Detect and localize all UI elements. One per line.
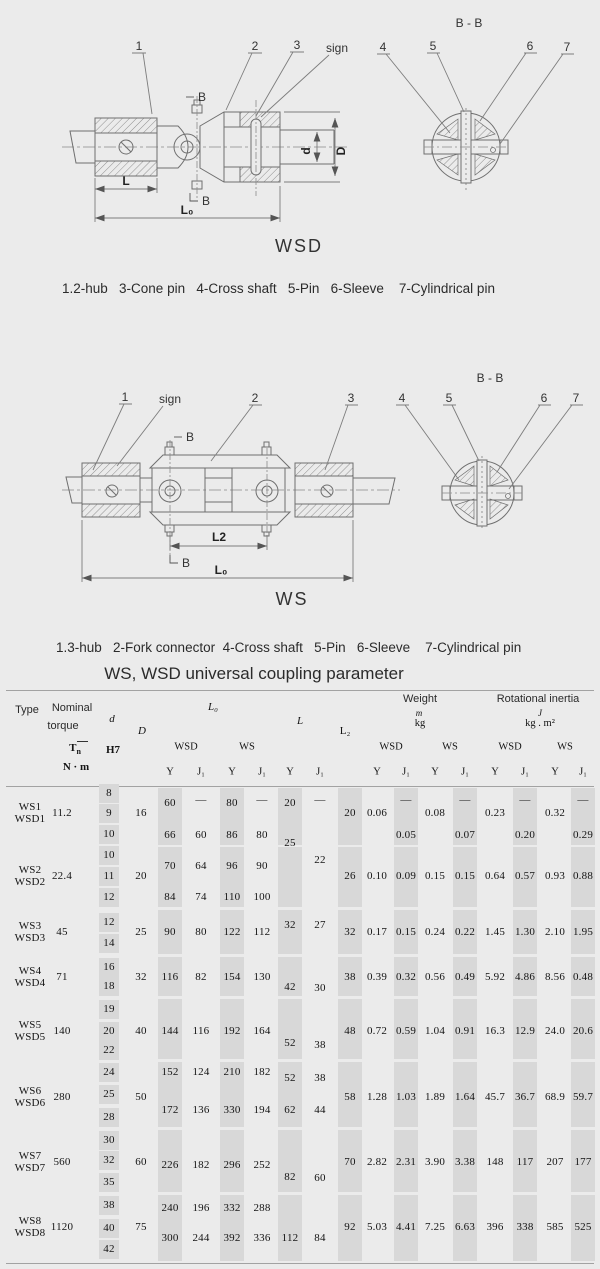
col-header-j: J [538, 708, 542, 718]
table-cell: 22 [103, 1044, 114, 1056]
table-cell: 5.03 [367, 1221, 387, 1233]
table-cell: — [577, 794, 588, 806]
table-cell: 19 [103, 1003, 114, 1015]
table-cell: 0.05 [396, 829, 416, 841]
table-cell: 207 [546, 1156, 563, 1168]
table-cell: 66 [164, 829, 175, 841]
table-cell: 20 [284, 797, 295, 809]
table-cell: 1.30 [515, 926, 535, 938]
ws-bb-section [442, 456, 522, 530]
table-cell: WSD7 [15, 1162, 46, 1174]
table-cell: WSD6 [15, 1097, 46, 1109]
table-cell: 2.82 [367, 1156, 387, 1168]
table-cell: 42 [284, 981, 295, 993]
table-cell: 68.9 [545, 1091, 565, 1103]
table-cell: 27 [314, 919, 325, 931]
col-header-type: Type [15, 704, 39, 716]
table-cell: 130 [253, 971, 270, 983]
ws-section-b-bottom-label: B [182, 556, 190, 570]
group-header-wsd: WSD [174, 742, 197, 753]
table-cell: 58 [344, 1091, 355, 1103]
table-cell: 96 [226, 860, 237, 872]
wsd-sign-label: sign [326, 41, 348, 55]
ws-callout-6: 6 [541, 391, 548, 405]
table-cell: 116 [162, 971, 179, 983]
table-cell: 16 [103, 961, 114, 973]
table-cell: 59.7 [573, 1091, 593, 1103]
table-cell: 80 [195, 926, 206, 938]
table-cell: 1.89 [425, 1091, 445, 1103]
catalog-page: d D L L₀ B B 1 2 3 sign [0, 0, 600, 1269]
table-cell: 52 [284, 1037, 295, 1049]
ws-callout-leaders [93, 404, 358, 470]
table-cell: 52 [284, 1072, 295, 1084]
table-cell: 30 [314, 982, 325, 994]
column-stripe [278, 847, 302, 907]
wsd-assembly-drawing [62, 96, 348, 198]
table-cell: WSD1 [15, 813, 46, 825]
col-header-D: D [138, 725, 146, 737]
table-cell: 0.15 [425, 870, 445, 882]
table-cell: 2.10 [545, 926, 565, 938]
table-cell: WSD2 [15, 876, 46, 888]
table-cell: 296 [223, 1159, 240, 1171]
wsd-callout-1: 1 [136, 39, 143, 53]
table-cell: 70 [344, 1156, 355, 1168]
table-cell: 71 [56, 971, 67, 983]
table-cell: 1.28 [367, 1091, 387, 1103]
table-cell: 32 [103, 1154, 114, 1166]
table-cell: 0.93 [545, 870, 565, 882]
table-cell: 16 [135, 807, 146, 819]
ws-callout-1: 1 [122, 390, 129, 404]
col-header-nominal: Nominal [52, 702, 92, 714]
col-header-l0: L₀ [208, 701, 218, 713]
table-cell: 585 [546, 1221, 563, 1233]
table-cell: 14 [103, 937, 114, 949]
table-cell: 0.23 [485, 807, 505, 819]
table-cell: 0.72 [367, 1025, 387, 1037]
table-cell: 25 [284, 837, 295, 849]
table-cell: 38 [344, 971, 355, 983]
ws-callout-3: 3 [348, 391, 355, 405]
table-cell: 0.32 [396, 971, 416, 983]
col-header-kgm2: kg . m² [525, 718, 555, 729]
table-cell: 24.0 [545, 1025, 565, 1037]
subcol-header-j1: J₁ [316, 767, 324, 778]
table-cell: 35 [103, 1176, 114, 1188]
table-cell: 30 [103, 1134, 114, 1146]
table-cell: 244 [192, 1232, 209, 1244]
table-title: WS, WSD universal coupling parameter [104, 664, 404, 684]
table-cell: 8.56 [545, 971, 565, 983]
table-cell: 64 [195, 860, 206, 872]
table-cell: 38 [314, 1072, 325, 1084]
table-cell: 0.15 [455, 870, 475, 882]
table-cell: 84 [314, 1232, 325, 1244]
table-cell: 20 [103, 1025, 114, 1037]
wsd-parts-legend: 1.2-hub 3-Cone pin 4-Cross shaft 5-Pin 6… [62, 281, 495, 296]
table-cell: 1120 [51, 1221, 73, 1233]
table-cell: 240 [161, 1202, 178, 1214]
wsd-callout-6: 6 [527, 39, 534, 53]
table-cell: 25 [135, 926, 146, 938]
table-cell: 144 [161, 1025, 178, 1037]
table-cell: 6.63 [455, 1221, 475, 1233]
wsd-callout-5: 5 [430, 39, 437, 53]
table-cell: 86 [226, 829, 237, 841]
ws-fork-connector-bottom [150, 512, 290, 525]
table-cell: 40 [103, 1222, 114, 1234]
group-header-wsd: WSD [379, 742, 402, 753]
subcol-header-y: Y [228, 767, 236, 778]
ws-section-b-top-label: B [186, 430, 194, 444]
table-cell: WSD5 [15, 1031, 46, 1043]
table-cell: 122 [223, 926, 240, 938]
table-cell: 0.48 [573, 971, 593, 983]
table-cell: 16.3 [485, 1025, 505, 1037]
table-cell: 45 [56, 926, 67, 938]
table-cell: 32 [344, 926, 355, 938]
table-cell: WSD3 [15, 932, 46, 944]
table-cell: 74 [195, 891, 206, 903]
subcol-header-y: Y [166, 767, 174, 778]
table-cell: 12 [103, 916, 114, 928]
table-cell: 117 [517, 1156, 534, 1168]
wsd-bb-section [424, 108, 508, 190]
table-cell: 18 [103, 980, 114, 992]
ws-assembly-drawing [62, 440, 400, 560]
table-cell: 0.56 [425, 971, 445, 983]
table-cell: 10 [103, 828, 114, 840]
table-cell: WS3 [19, 920, 42, 932]
table-cell: 0.32 [545, 807, 565, 819]
table-cell: 226 [161, 1159, 178, 1171]
table-cell: 8 [106, 787, 112, 799]
wsd-callout-7: 7 [564, 40, 571, 54]
table-cell: WS4 [19, 965, 42, 977]
col-header-weight: Weight [403, 693, 437, 705]
table-cell: 252 [253, 1159, 270, 1171]
table-cell: 0.09 [396, 870, 416, 882]
table-top-rule [6, 690, 594, 691]
ws-sign-label: sign [159, 392, 181, 406]
table-cell: 45.7 [485, 1091, 505, 1103]
table-cell: 0.22 [455, 926, 475, 938]
subcol-header-y: Y [431, 767, 439, 778]
wsd-section-b-top-label: B [198, 90, 206, 104]
table-cell: 24 [103, 1066, 114, 1078]
table-cell: 32 [135, 971, 146, 983]
table-cell: 0.88 [573, 870, 593, 882]
subcol-header-y: Y [286, 767, 294, 778]
ws-callout-5: 5 [446, 391, 453, 405]
table-cell: 112 [254, 926, 271, 938]
table-cell: 90 [256, 860, 267, 872]
table-cell: 84 [164, 891, 175, 903]
table-cell: 0.91 [455, 1025, 475, 1037]
table-cell: 48 [344, 1025, 355, 1037]
subcol-header-j1: J₁ [579, 767, 587, 778]
table-cell: 26 [344, 870, 355, 882]
group-header-ws: WS [239, 742, 255, 753]
table-cell: 0.39 [367, 971, 387, 983]
table-cell: 192 [223, 1025, 240, 1037]
ws-bb-title: B - B [477, 371, 504, 385]
table-cell: 42 [103, 1243, 114, 1255]
table-cell: 20 [344, 807, 355, 819]
table-cell: 92 [344, 1221, 355, 1233]
table-cell: WS7 [19, 1150, 42, 1162]
table-cell: 525 [574, 1221, 591, 1233]
col-header-m: m [416, 708, 423, 718]
table-cell: 2.31 [396, 1156, 416, 1168]
table-cell: 20.6 [573, 1025, 593, 1037]
coupling-drawings: d D L L₀ B B 1 2 3 sign [0, 0, 600, 640]
col-header-tn: Tn [69, 742, 81, 756]
table-cell: 0.24 [425, 926, 445, 938]
table-cell: 0.59 [396, 1025, 416, 1037]
table-cell: 1.64 [455, 1091, 475, 1103]
table-cell: — [256, 794, 267, 806]
table-cell: 396 [486, 1221, 503, 1233]
table-cell: 60 [314, 1172, 325, 1184]
column-stripe [278, 1195, 302, 1261]
table-cell: 1.45 [485, 926, 505, 938]
table-cell: — [314, 794, 325, 806]
table-cell: 10 [103, 849, 114, 861]
col-header-nm: N · m [63, 761, 89, 773]
table-cell: 9 [106, 807, 112, 819]
table-cell: 172 [161, 1104, 178, 1116]
table-cell: 0.08 [425, 807, 445, 819]
table-cell: 1.95 [573, 926, 593, 938]
table-cell: 11.2 [52, 807, 72, 819]
table-cell: 332 [223, 1202, 240, 1214]
group-header-ws: WS [557, 742, 573, 753]
subcol-header-y: Y [373, 767, 381, 778]
table-cell: 11 [104, 870, 115, 882]
table-cell: 100 [253, 891, 270, 903]
table-cell: 4.86 [515, 971, 535, 983]
table-cell: 177 [574, 1156, 591, 1168]
table-cell: 22.4 [52, 870, 72, 882]
table-cell: 196 [192, 1202, 209, 1214]
table-cell: 110 [224, 891, 241, 903]
table-cell: 0.20 [515, 829, 535, 841]
table-cell: 0.07 [455, 829, 475, 841]
table-cell: 112 [282, 1232, 299, 1244]
ws-callout-4: 4 [399, 391, 406, 405]
col-header-l: L [297, 715, 303, 727]
wsd-callout-leaders [132, 52, 329, 117]
ws-dim-L2-label: L2 [212, 530, 226, 544]
wsd-dim-D-label: D [334, 146, 348, 155]
table-cell: WS1 [19, 801, 42, 813]
ws-parts-legend: 1.3-hub 2-Fork connector 4-Cross shaft 5… [56, 640, 521, 655]
table-cell: 28 [103, 1111, 114, 1123]
table-cell: 0.64 [485, 870, 505, 882]
wsd-callout-2: 2 [252, 39, 259, 53]
group-header-ws: WS [442, 742, 458, 753]
table-cell: 60 [195, 829, 206, 841]
subcol-header-j1: J₁ [461, 767, 469, 778]
table-cell: 44 [314, 1104, 325, 1116]
table-cell: 0.49 [455, 971, 475, 983]
table-cell: 210 [223, 1066, 240, 1078]
ws-right-shaft [353, 478, 395, 504]
table-bottom-rule [6, 1263, 594, 1264]
subcol-header-j1: J₁ [521, 767, 529, 778]
ws-fork-connector-top [150, 455, 290, 468]
table-cell: 20 [135, 870, 146, 882]
subcol-header-j1: J₁ [258, 767, 266, 778]
table-cell: WSD4 [15, 977, 46, 989]
table-cell: 136 [192, 1104, 209, 1116]
table-header-rule [6, 786, 594, 787]
table-cell: 0.57 [515, 870, 535, 882]
table-cell: 70 [164, 860, 175, 872]
table-cell: 90 [164, 926, 175, 938]
table-cell: 288 [253, 1202, 270, 1214]
table-cell: 152 [161, 1066, 178, 1078]
ws-bb-leaders [396, 405, 583, 489]
table-cell: 75 [135, 1221, 146, 1233]
table-cell: 560 [53, 1156, 70, 1168]
column-stripe [278, 910, 302, 954]
wsd-bb-title: B - B [456, 16, 483, 30]
table-cell: 60 [164, 797, 175, 809]
wsd-callout-3: 3 [294, 38, 301, 52]
table-cell: 0.06 [367, 807, 387, 819]
group-header-wsd: WSD [498, 742, 521, 753]
col-header-kg: kg [415, 718, 426, 729]
table-cell: 50 [135, 1091, 146, 1103]
ws-caption: WS [276, 589, 309, 610]
table-cell: WSD8 [15, 1227, 46, 1239]
table-cell: 140 [53, 1025, 70, 1037]
table-cell: 194 [253, 1104, 270, 1116]
wsd-dim-L0-label: L₀ [181, 203, 194, 217]
table-cell: 124 [192, 1066, 209, 1078]
table-cell: — [195, 794, 206, 806]
table-cell: 182 [253, 1066, 270, 1078]
table-cell: 12 [103, 891, 114, 903]
column-stripe [278, 999, 302, 1059]
table-cell: WS5 [19, 1019, 42, 1031]
table-cell: 36.7 [515, 1091, 535, 1103]
table-cell: 164 [253, 1025, 270, 1037]
table-cell: 7.25 [425, 1221, 445, 1233]
table-cell: — [459, 794, 470, 806]
table-cell: 116 [193, 1025, 210, 1037]
table-cell: 62 [284, 1104, 295, 1116]
table-cell: 38 [103, 1199, 114, 1211]
table-cell: 182 [192, 1159, 209, 1171]
table-cell: 330 [223, 1104, 240, 1116]
table-cell: 3.38 [455, 1156, 475, 1168]
col-header-l2: L₂ [340, 725, 351, 737]
table-cell: WS6 [19, 1085, 42, 1097]
col-header-d: d [109, 713, 115, 725]
col-header-torque: torque [47, 720, 78, 732]
wsd-section-b-bottom-label: B [202, 194, 210, 208]
subcol-header-y: Y [491, 767, 499, 778]
table-cell: 80 [256, 829, 267, 841]
table-cell: 12.9 [515, 1025, 535, 1037]
ws-callout-2: 2 [252, 391, 259, 405]
table-cell: 32 [284, 919, 295, 931]
table-cell: 300 [161, 1232, 178, 1244]
table-cell: 25 [103, 1088, 114, 1100]
wsd-callout-4: 4 [380, 40, 387, 54]
subcol-header-y: Y [551, 767, 559, 778]
table-cell: 148 [486, 1156, 503, 1168]
table-cell: 280 [53, 1091, 70, 1103]
table-cell: 82 [195, 971, 206, 983]
table-cell: 60 [135, 1156, 146, 1168]
table-cell: — [519, 794, 530, 806]
table-cell: WS8 [19, 1215, 42, 1227]
subcol-header-j1: J₁ [402, 767, 410, 778]
table-cell: 40 [135, 1025, 146, 1037]
table-cell: 5.92 [485, 971, 505, 983]
table-cell: 80 [226, 797, 237, 809]
table-cell: 38 [314, 1039, 325, 1051]
table-cell: 82 [284, 1171, 295, 1183]
table-cell: WS2 [19, 864, 42, 876]
table-cell: 1.03 [396, 1091, 416, 1103]
wsd-dim-d-label: d [299, 147, 313, 154]
table-cell: 392 [223, 1232, 240, 1244]
table-cell: 0.10 [367, 870, 387, 882]
col-header-h7: H7 [106, 744, 120, 756]
table-cell: 4.41 [396, 1221, 416, 1233]
table-cell: 336 [253, 1232, 270, 1244]
table-cell: 0.15 [396, 926, 416, 938]
wsd-caption: WSD [275, 236, 323, 257]
table-cell: — [400, 794, 411, 806]
table-cell: 154 [223, 971, 240, 983]
table-cell: 22 [314, 854, 325, 866]
subcol-header-j1: J₁ [197, 767, 205, 778]
table-cell: 1.04 [425, 1025, 445, 1037]
table-cell: 3.90 [425, 1156, 445, 1168]
col-header-inertia: Rotational inertia [497, 693, 580, 705]
table-cell: 0.17 [367, 926, 387, 938]
table-cell: 0.29 [573, 829, 593, 841]
ws-callout-7: 7 [573, 391, 580, 405]
ws-dim-L0-label: L₀ [215, 563, 228, 577]
table-cell: 338 [516, 1221, 533, 1233]
wsd-dim-L-label: L [122, 174, 129, 188]
